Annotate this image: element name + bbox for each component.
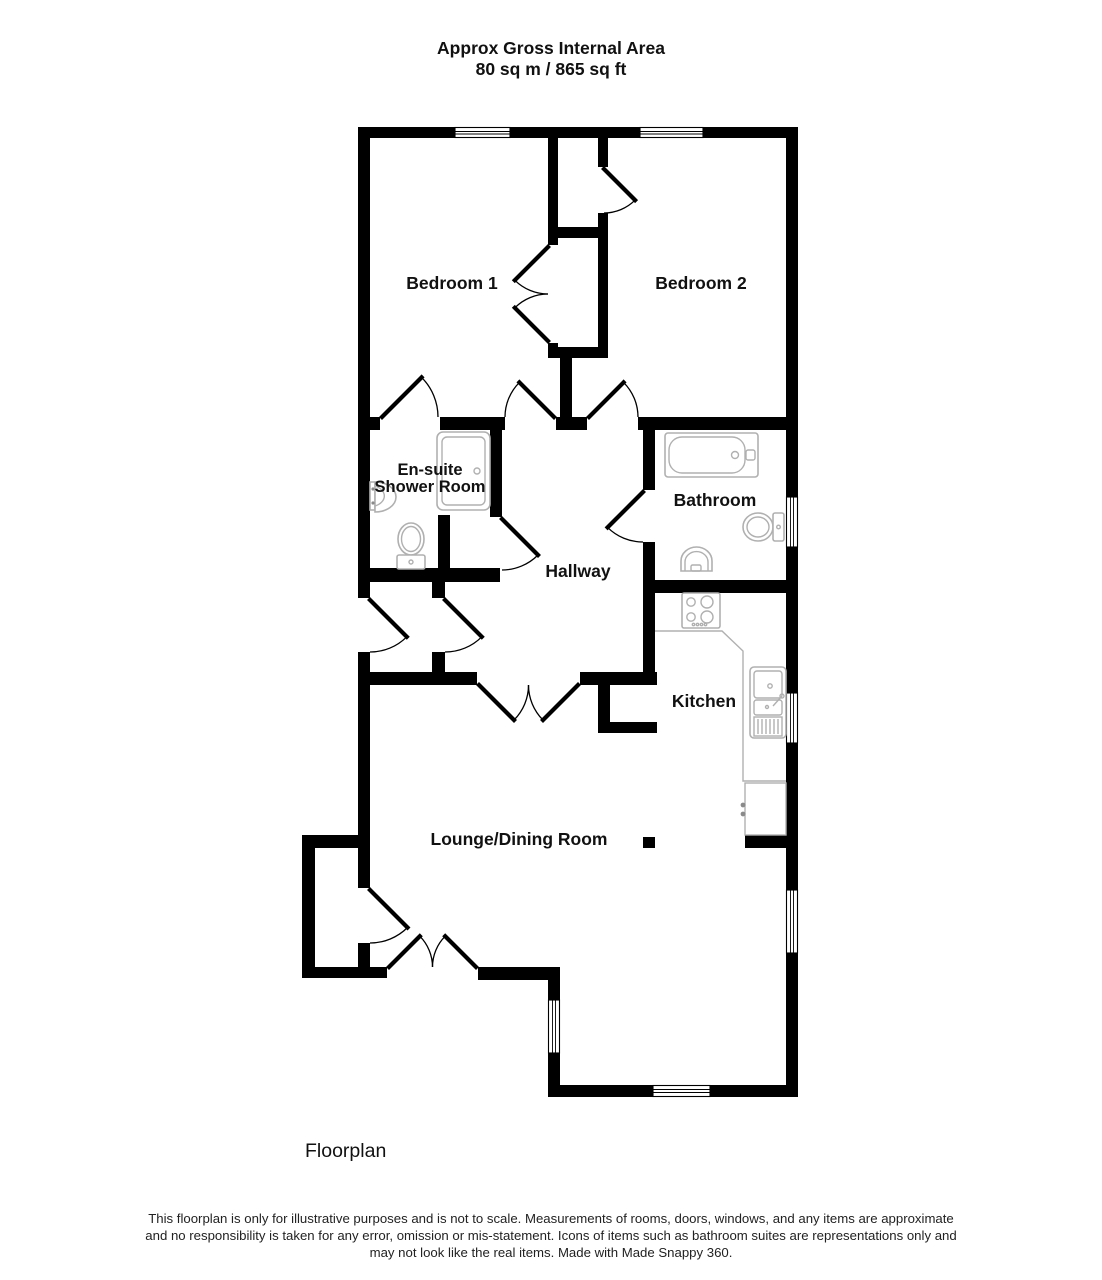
hallway-label: Hallway <box>545 561 610 581</box>
window-kitchen <box>787 693 798 743</box>
ensuite-wall <box>490 430 502 517</box>
disclaimer-line2: and no responsibility is taken for any e… <box>145 1228 956 1243</box>
closet-wall <box>558 227 608 238</box>
ensuite-label-line2: Shower Room <box>375 478 486 496</box>
disclaimer-line3: may not look like the real items. Made w… <box>370 1245 733 1260</box>
kitchen-label: Kitchen <box>672 691 736 711</box>
wall-segment <box>786 743 798 890</box>
door-french-doors <box>389 936 476 967</box>
ensuite-wall <box>438 515 450 568</box>
bathroom-basin <box>681 547 712 571</box>
window-lounge-left <box>549 1000 560 1053</box>
door-bedroom1-ensuite <box>382 377 438 417</box>
closet-wall <box>548 347 608 358</box>
window-lounge-right <box>787 890 798 953</box>
bedroom-divider-wall <box>560 358 572 417</box>
bathtub <box>665 433 758 477</box>
wall-segment <box>548 1085 653 1097</box>
gross-area-title: Approx Gross Internal Area <box>437 38 665 58</box>
floorplan-page: Approx Gross Internal Area 80 sq m / 865… <box>0 0 1102 1280</box>
window-lounge-bottom <box>653 1086 710 1097</box>
wall-segment <box>556 417 587 430</box>
closet-wall <box>548 138 558 245</box>
ensuite-label-line1: En-suite <box>397 461 462 479</box>
bathroom-label: Bathroom <box>674 490 757 510</box>
lobby-wall <box>432 652 445 672</box>
closet-wall <box>598 138 608 167</box>
door-porch-lounge <box>370 890 408 943</box>
header: Approx Gross Internal Area 80 sq m / 865… <box>437 38 665 79</box>
hob <box>682 593 720 628</box>
wall-segment <box>358 417 380 430</box>
wall-pillar <box>643 837 655 848</box>
wall-segment <box>638 417 798 430</box>
floorplan-caption: Floorplan <box>305 1140 386 1162</box>
door-bedroom2-hallway <box>589 382 638 417</box>
door-hallway-lounge-double <box>479 685 578 720</box>
door-bedroom1-hallway <box>505 382 554 417</box>
wall-segment <box>786 953 798 1097</box>
door-ensuite-hallway <box>502 519 538 570</box>
ensuite-wall <box>358 568 500 582</box>
footer: Floorplan This floorplan is only for ill… <box>145 1140 956 1260</box>
porch-wall <box>302 835 315 978</box>
disclaimer-line1: This floorplan is only for illustrative … <box>148 1211 954 1226</box>
wall-segment <box>786 547 798 693</box>
kitchen-unit <box>741 783 786 835</box>
window-bathroom <box>787 497 798 547</box>
closet-wall <box>598 238 608 347</box>
kitchen-recess-wall <box>598 722 657 733</box>
door-closet-bedroom1-bifold <box>515 247 548 341</box>
door-closet-bedroom2 <box>604 169 635 213</box>
ensuite-toilet <box>397 523 425 569</box>
hallway-wall <box>358 672 477 685</box>
wall-segment <box>358 652 370 888</box>
floorplan-svg: Approx Gross Internal Area 80 sq m / 865… <box>0 0 1102 1280</box>
wall-segment <box>510 127 640 138</box>
wall-segment <box>710 1085 798 1097</box>
bathroom-toilet <box>743 513 784 541</box>
wall-segment <box>478 967 560 980</box>
wall-segment <box>548 978 560 1000</box>
porch-wall <box>302 835 370 848</box>
bedroom1-label: Bedroom 1 <box>406 273 498 293</box>
porch-wall <box>302 967 387 978</box>
gross-area-value: 80 sq m / 865 sq ft <box>476 59 627 79</box>
wall-segment <box>703 127 798 138</box>
door-lobby-entrance <box>370 600 407 652</box>
kitchen-wall <box>643 593 655 672</box>
bathroom-wall <box>643 580 798 593</box>
wall-segment <box>358 127 455 138</box>
wall-segment <box>786 138 798 497</box>
lounge-label: Lounge/Dining Room <box>431 829 608 849</box>
hallway-wall <box>580 672 657 685</box>
window-bedroom1 <box>455 128 510 138</box>
closet-wall <box>598 213 608 227</box>
bedroom2-label: Bedroom 2 <box>655 273 747 293</box>
kitchen-sink <box>750 667 786 738</box>
bathroom-wall <box>643 430 655 490</box>
wall-segment <box>358 138 370 598</box>
door-lobby-hallway <box>445 600 482 652</box>
wall-segment <box>440 417 505 430</box>
window-bedroom2 <box>640 128 703 138</box>
lobby-wall <box>432 582 445 598</box>
kitchen-wall <box>745 835 788 848</box>
door-bathroom <box>608 492 643 542</box>
